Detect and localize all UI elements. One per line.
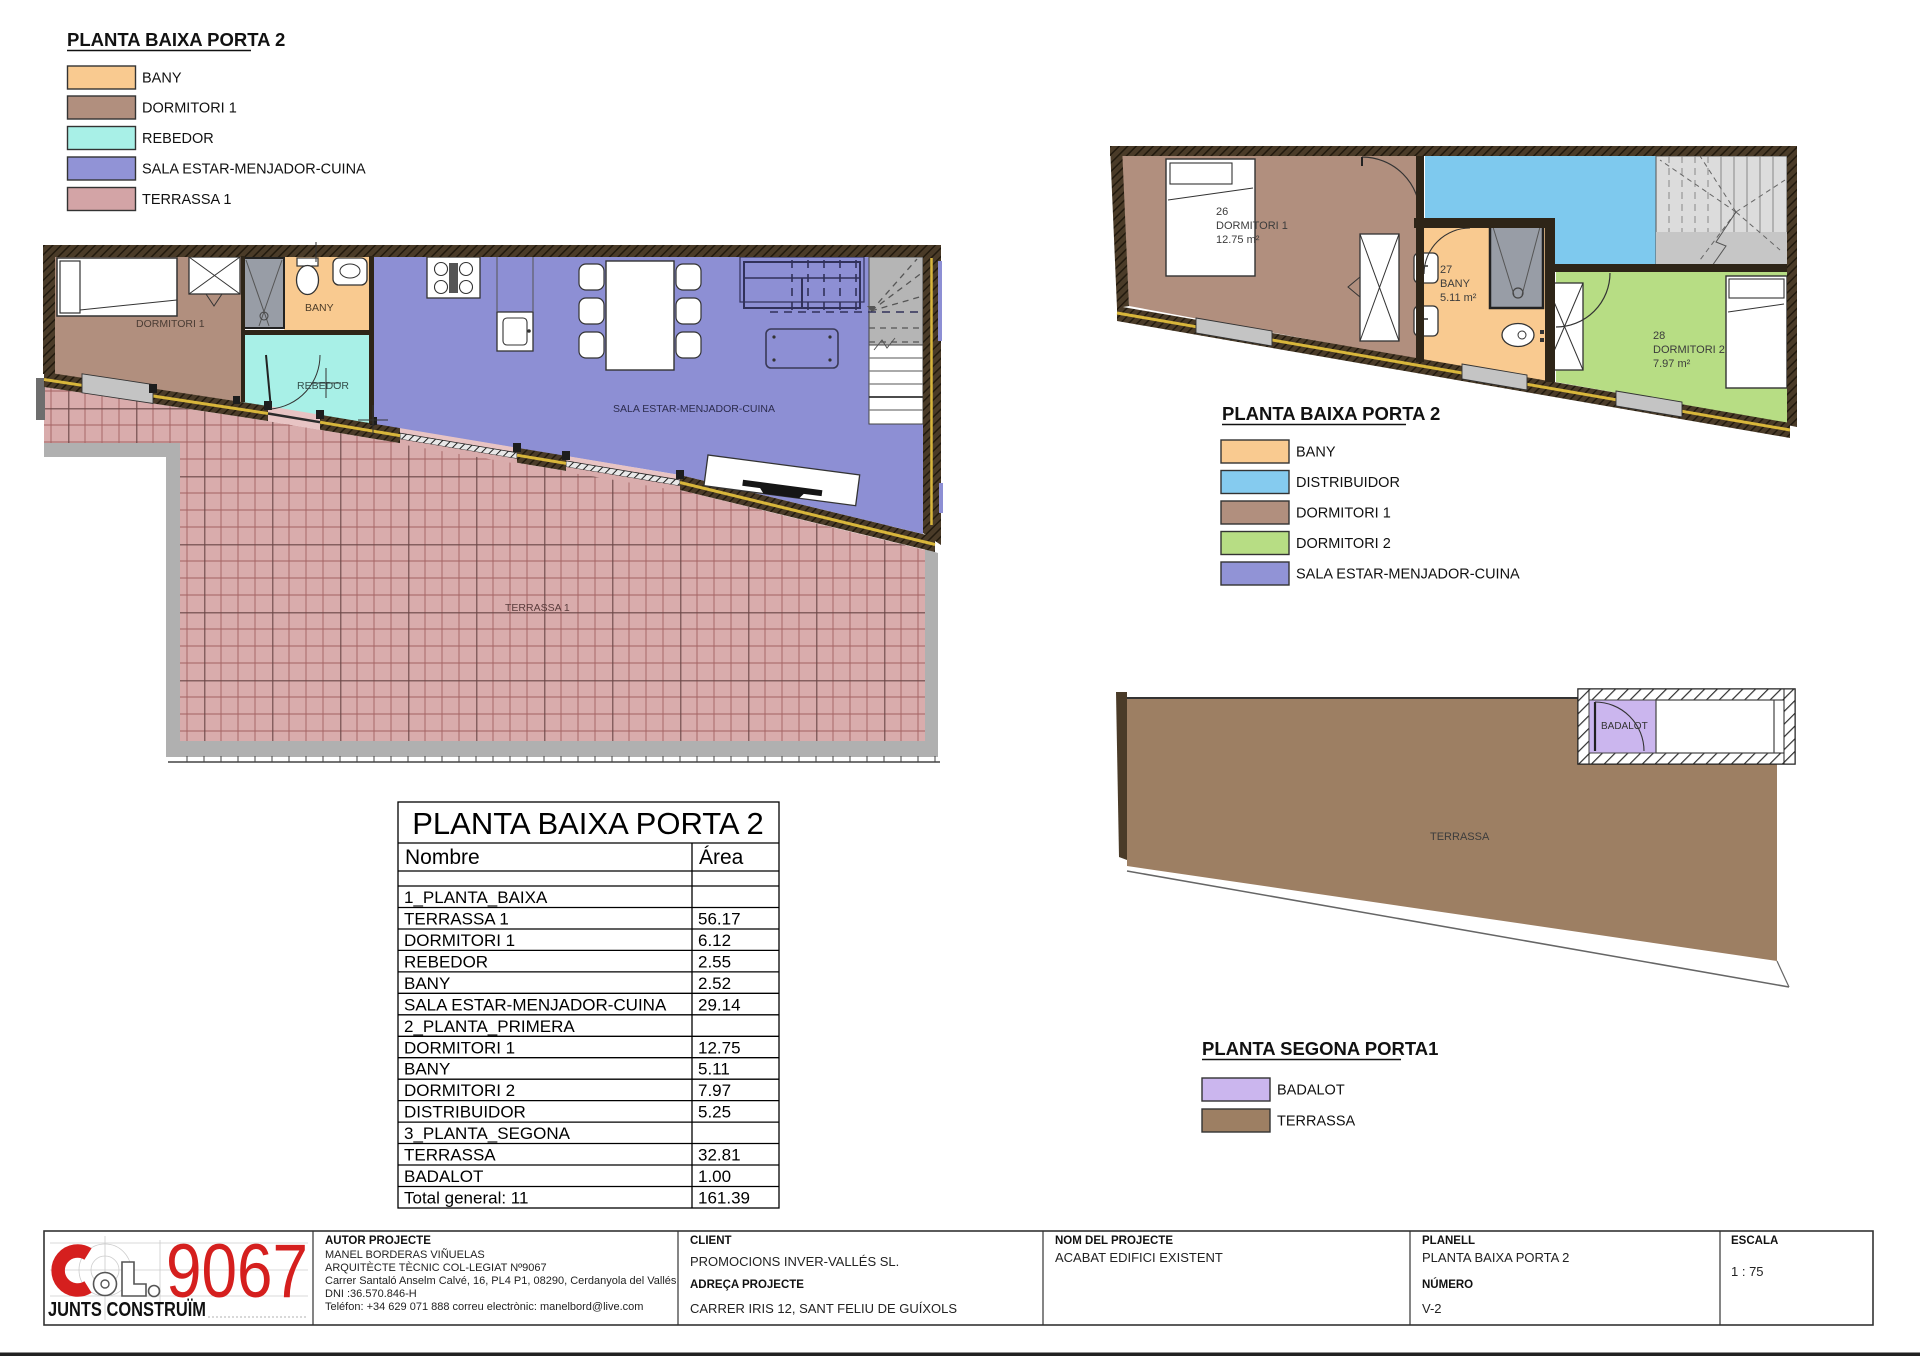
svg-text:REBEDOR: REBEDOR bbox=[142, 131, 214, 147]
svg-text:DNI :36.570.846-H: DNI :36.570.846-H bbox=[325, 1288, 417, 1300]
svg-text:JUNTS CONSTRUÏM: JUNTS CONSTRUÏM bbox=[48, 1298, 206, 1321]
svg-text:Área: Área bbox=[699, 846, 744, 869]
svg-text:NOM DEL PROJECTE: NOM DEL PROJECTE bbox=[1055, 1235, 1173, 1247]
svg-text:1.00: 1.00 bbox=[698, 1167, 731, 1186]
svg-text:32.81: 32.81 bbox=[698, 1146, 741, 1165]
svg-text:27: 27 bbox=[1440, 264, 1452, 276]
svg-text:PLANTA BAIXA PORTA 2: PLANTA BAIXA PORTA 2 bbox=[412, 806, 764, 841]
svg-text:26: 26 bbox=[1216, 206, 1228, 218]
svg-text:DORMITORI 1: DORMITORI 1 bbox=[136, 318, 205, 330]
svg-text:TERRASSA 1: TERRASSA 1 bbox=[142, 192, 231, 208]
svg-text:AUTOR PROJECTE: AUTOR PROJECTE bbox=[325, 1235, 431, 1247]
svg-text:SALA ESTAR-MENJADOR-CUINA: SALA ESTAR-MENJADOR-CUINA bbox=[142, 162, 366, 178]
svg-text:PROMOCIONS INVER-VALLÉS SL.: PROMOCIONS INVER-VALLÉS SL. bbox=[690, 1254, 899, 1269]
svg-text:5.25: 5.25 bbox=[698, 1103, 731, 1122]
svg-text:7.97: 7.97 bbox=[698, 1081, 731, 1100]
svg-text:5.11 m²: 5.11 m² bbox=[1440, 292, 1477, 304]
svg-text:12.75: 12.75 bbox=[698, 1038, 741, 1057]
svg-text:6.12: 6.12 bbox=[698, 931, 731, 950]
svg-text:2_PLANTA_PRIMERA: 2_PLANTA_PRIMERA bbox=[404, 1017, 575, 1036]
svg-text:DORMITORI 2: DORMITORI 2 bbox=[404, 1081, 515, 1100]
svg-text:ACABAT EDIFICI EXISTENT: ACABAT EDIFICI EXISTENT bbox=[1055, 1250, 1223, 1265]
svg-text:2.55: 2.55 bbox=[698, 952, 731, 971]
svg-text:DORMITORI 1: DORMITORI 1 bbox=[1296, 506, 1391, 522]
svg-text:PLANTA BAIXA PORTA 2: PLANTA BAIXA PORTA 2 bbox=[1222, 403, 1440, 424]
svg-text:2.52: 2.52 bbox=[698, 974, 731, 993]
svg-text:DISTRIBUIDOR: DISTRIBUIDOR bbox=[404, 1103, 526, 1122]
svg-text:BANY: BANY bbox=[404, 974, 450, 993]
svg-text:BANY: BANY bbox=[1296, 445, 1336, 461]
svg-text:MANEL BORDERAS VIÑUELAS: MANEL BORDERAS VIÑUELAS bbox=[325, 1248, 485, 1261]
svg-text:12.75 m²: 12.75 m² bbox=[1216, 234, 1260, 246]
svg-text:Carrer Santaló Anselm Calvé, 1: Carrer Santaló Anselm Calvé, 16, PL4 P1,… bbox=[325, 1275, 677, 1287]
svg-text:BANY: BANY bbox=[404, 1060, 450, 1079]
svg-text:CARRER IRIS 12, SANT FELIU DE: CARRER IRIS 12, SANT FELIU DE GUÍXOLS bbox=[690, 1301, 957, 1316]
svg-text:DORMITORI 1: DORMITORI 1 bbox=[404, 1038, 515, 1057]
svg-text:REBEDOR: REBEDOR bbox=[297, 380, 349, 392]
svg-text:PLANELL: PLANELL bbox=[1422, 1235, 1475, 1247]
svg-text:28: 28 bbox=[1653, 330, 1665, 342]
svg-text:SALA ESTAR-MENJADOR-CUINA: SALA ESTAR-MENJADOR-CUINA bbox=[613, 403, 775, 415]
svg-text:DISTRIBUIDOR: DISTRIBUIDOR bbox=[1296, 475, 1400, 491]
svg-text:NÚMERO: NÚMERO bbox=[1422, 1278, 1473, 1291]
svg-text:ARQUITÈCTE TÈCNIC COL-LEGIAT N: ARQUITÈCTE TÈCNIC COL-LEGIAT Nº9067 bbox=[325, 1261, 547, 1274]
svg-text:ADREÇA PROJECTE: ADREÇA PROJECTE bbox=[690, 1279, 804, 1291]
svg-text:CLIENT: CLIENT bbox=[690, 1235, 732, 1247]
svg-text:7.97 m²: 7.97 m² bbox=[1653, 358, 1691, 370]
svg-text:BADALOT: BADALOT bbox=[404, 1167, 483, 1186]
svg-text:TERRASSA: TERRASSA bbox=[1430, 831, 1490, 843]
svg-text:5.11: 5.11 bbox=[698, 1060, 730, 1079]
svg-text:PLANTA SEGONA PORTA1: PLANTA SEGONA PORTA1 bbox=[1202, 1038, 1438, 1059]
svg-text:Total general: 11: Total general: 11 bbox=[404, 1188, 528, 1207]
svg-text:DORMITORI 1: DORMITORI 1 bbox=[404, 931, 515, 950]
svg-text:1_PLANTA_BAIXA: 1_PLANTA_BAIXA bbox=[404, 888, 548, 907]
svg-text:BANY: BANY bbox=[1440, 278, 1471, 290]
svg-text:3_PLANTA_SEGONA: 3_PLANTA_SEGONA bbox=[404, 1124, 571, 1143]
svg-text:1 : 75: 1 : 75 bbox=[1731, 1264, 1764, 1279]
svg-text:Teléfon: +34 629 071 888 corre: Teléfon: +34 629 071 888 correu electròn… bbox=[325, 1301, 643, 1313]
svg-text:TERRASSA: TERRASSA bbox=[1277, 1114, 1355, 1130]
svg-text:DORMITORI 2: DORMITORI 2 bbox=[1296, 536, 1391, 552]
svg-text:161.39: 161.39 bbox=[698, 1188, 750, 1207]
svg-text:BANY: BANY bbox=[142, 71, 182, 87]
svg-text:29.14: 29.14 bbox=[698, 995, 741, 1014]
svg-text:V-2: V-2 bbox=[1422, 1301, 1442, 1316]
svg-text:TERRASSA: TERRASSA bbox=[404, 1146, 496, 1165]
svg-text:SALA ESTAR-MENJADOR-CUINA: SALA ESTAR-MENJADOR-CUINA bbox=[404, 995, 667, 1014]
svg-text:56.17: 56.17 bbox=[698, 910, 741, 929]
svg-text:Nombre: Nombre bbox=[405, 846, 480, 869]
svg-text:SALA ESTAR-MENJADOR-CUINA: SALA ESTAR-MENJADOR-CUINA bbox=[1296, 567, 1520, 583]
svg-text:PLANTA BAIXA PORTA 2: PLANTA BAIXA PORTA 2 bbox=[67, 29, 285, 50]
svg-text:PLANTA BAIXA PORTA 2: PLANTA BAIXA PORTA 2 bbox=[1422, 1250, 1569, 1265]
svg-text:ESCALA: ESCALA bbox=[1731, 1235, 1778, 1247]
svg-text:TERRASSA 1: TERRASSA 1 bbox=[505, 602, 570, 614]
svg-text:BADALOT: BADALOT bbox=[1601, 721, 1648, 732]
svg-text:DORMITORI 1: DORMITORI 1 bbox=[1216, 220, 1288, 232]
svg-text:DORMITORI 2: DORMITORI 2 bbox=[1653, 344, 1725, 356]
svg-text:TERRASSA 1: TERRASSA 1 bbox=[404, 910, 509, 929]
svg-text:REBEDOR: REBEDOR bbox=[404, 952, 488, 971]
svg-text:BADALOT: BADALOT bbox=[1277, 1083, 1345, 1099]
svg-text:BANY: BANY bbox=[305, 302, 334, 314]
svg-text:DORMITORI 1: DORMITORI 1 bbox=[142, 101, 237, 117]
